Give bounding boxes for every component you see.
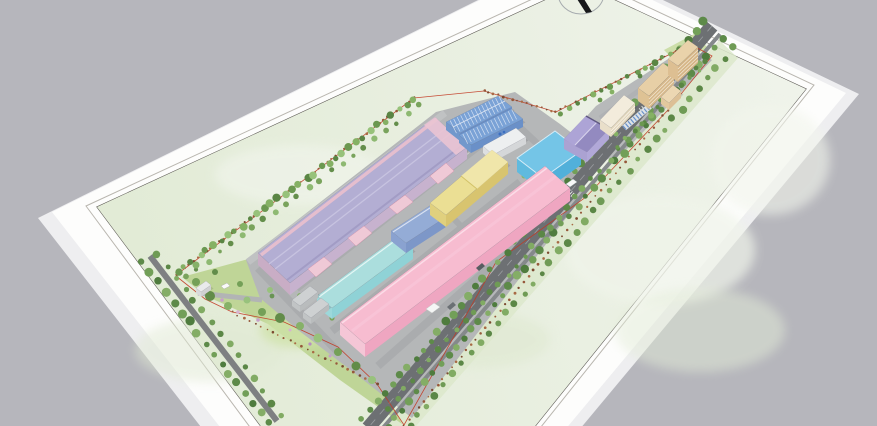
wash-blotch-2: [710, 105, 830, 215]
scene-canvas[interactable]: [0, 0, 877, 426]
viewport[interactable]: [0, 0, 877, 426]
wash-blotch-6: [615, 288, 785, 372]
